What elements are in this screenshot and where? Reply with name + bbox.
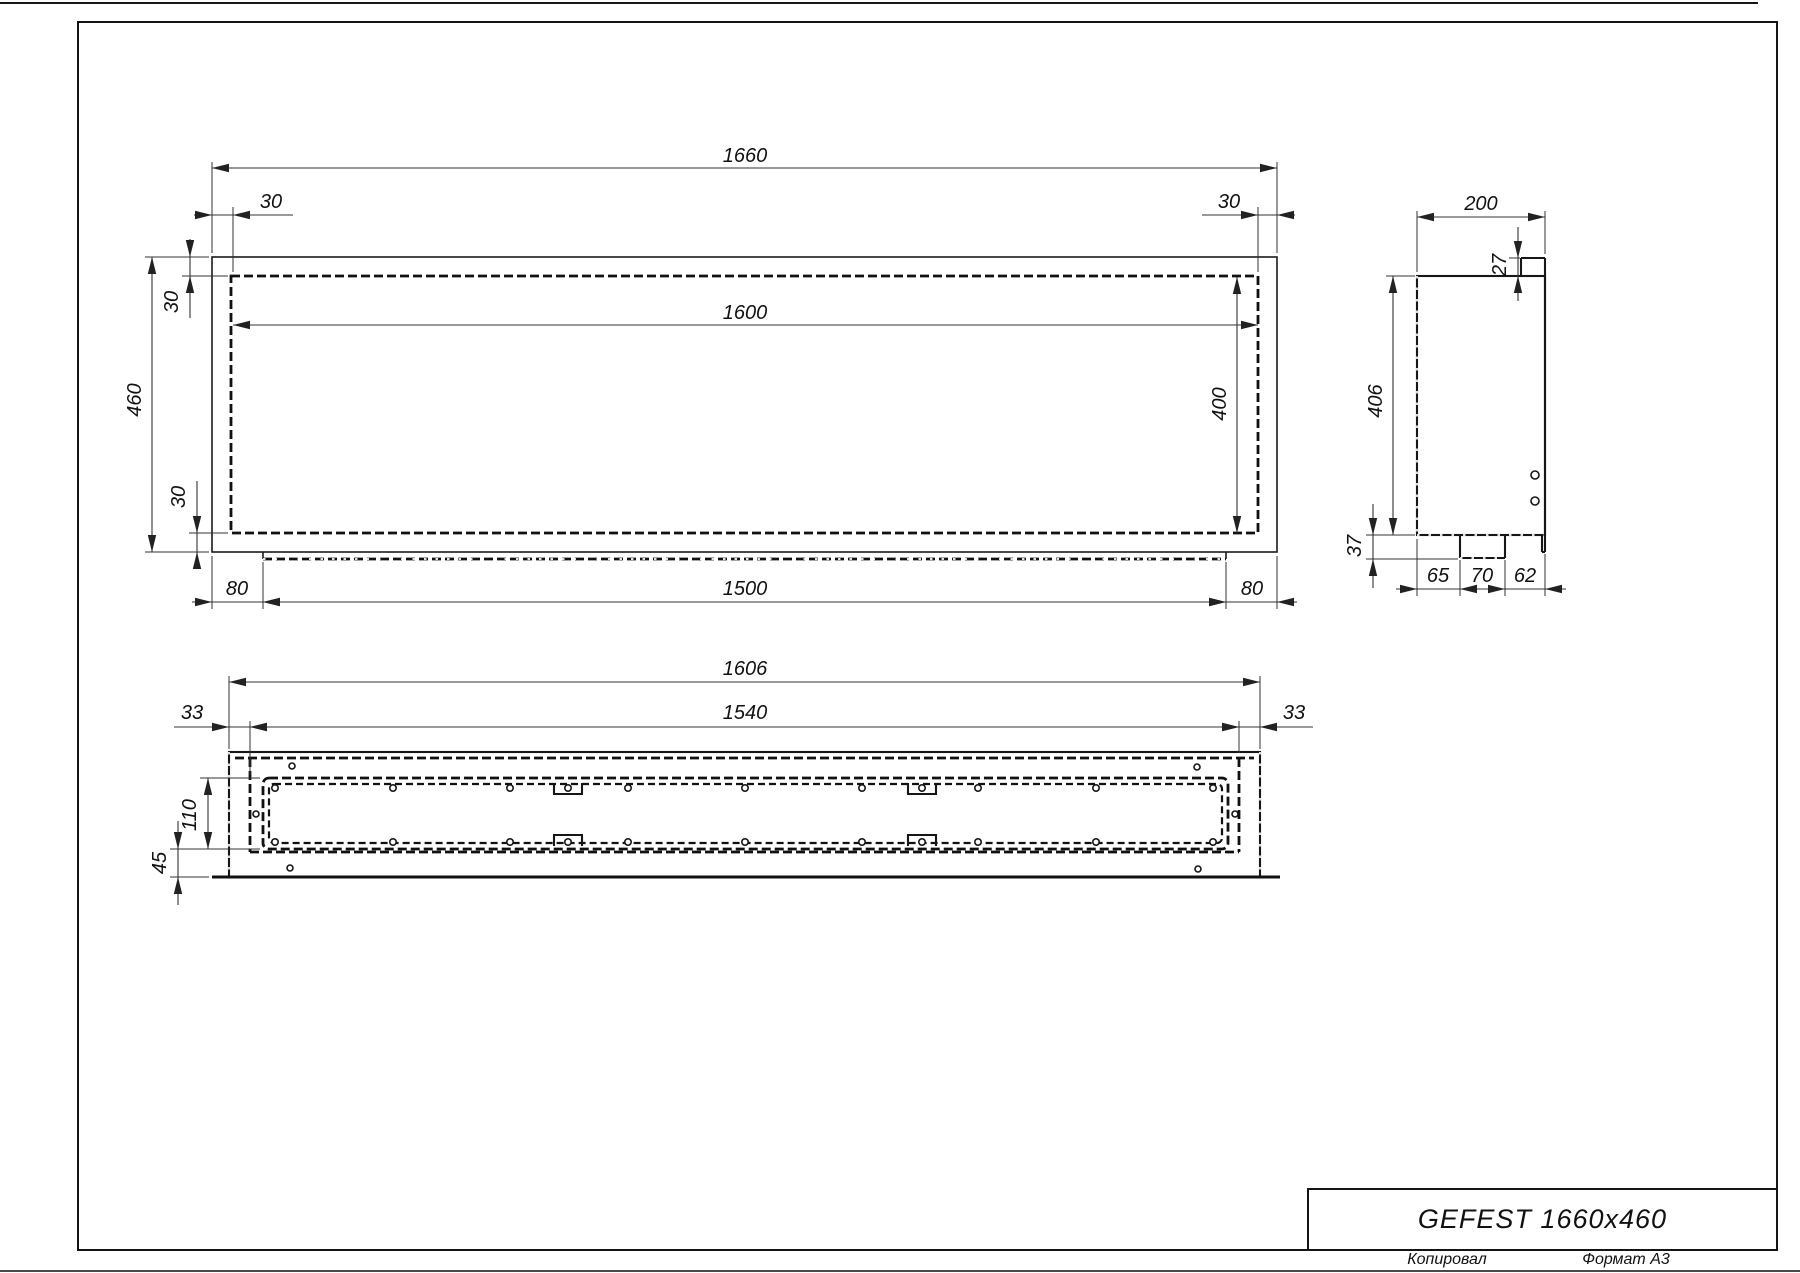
slot-hole — [1093, 785, 1099, 791]
dim-opening-width: 1600 — [233, 302, 1258, 329]
mount-hole — [289, 763, 295, 769]
dim-label: 30 — [260, 191, 282, 213]
drawing-title: GEFEST 1660x460 — [1418, 1204, 1667, 1235]
dimensions: 1660303016004604003030801500802002740637… — [124, 145, 1566, 905]
dim-margin-top-left: 30 — [194, 191, 293, 219]
dim-label: 45 — [149, 851, 171, 874]
dim-label: 37 — [1344, 534, 1366, 557]
dim-side-right: 33 — [1213, 702, 1313, 731]
dim-label: 1500 — [723, 578, 768, 600]
slot-hole — [390, 785, 396, 791]
drawing-sheet: 1660303016004604003030801500802002740637… — [0, 0, 1800, 1273]
dim-label: 1540 — [723, 702, 768, 724]
dim-depth: 200 — [1417, 193, 1545, 221]
dim-label: 70 — [1471, 565, 1493, 587]
dim-label: 110 — [179, 799, 201, 831]
dim-seg-left: 65 — [1396, 565, 1462, 593]
mount-hole — [1195, 866, 1201, 872]
bottom-view — [212, 752, 1280, 877]
dim-label: 400 — [1209, 387, 1231, 420]
title-block: GEFEST 1660x460 — [1307, 1188, 1778, 1251]
dim-label: 80 — [226, 578, 248, 600]
slot-hole — [919, 785, 925, 791]
dim-label: 1660 — [723, 145, 768, 167]
dim-label: 33 — [181, 702, 203, 724]
dim-label: 1600 — [723, 302, 768, 324]
slot-end-hole — [253, 811, 259, 817]
copied-label: Копировал — [1387, 1251, 1507, 1269]
slot-hole — [625, 839, 631, 845]
mount-hole — [287, 865, 293, 871]
slot-hole — [975, 839, 981, 845]
dim-width: 1660 — [212, 145, 1277, 172]
dim-label: 1606 — [723, 658, 768, 680]
dim-label: 62 — [1514, 565, 1536, 587]
slot-hole — [272, 839, 278, 845]
format-label: Формат А3 — [1566, 1251, 1686, 1269]
dim-tray-width: 1500 — [263, 578, 1226, 606]
slot-hole — [565, 785, 571, 791]
side-view — [1417, 258, 1545, 558]
dim-label: 406 — [1365, 383, 1387, 417]
dim-flange: 27 — [1489, 227, 1522, 301]
slot-end-hole — [1232, 811, 1238, 817]
slot-hole — [565, 839, 571, 845]
slot-hole — [859, 785, 865, 791]
slot-hole — [919, 839, 925, 845]
slot-hole — [507, 785, 513, 791]
dim-seg-mid: 70 — [1460, 565, 1505, 593]
dim-label: 80 — [1241, 578, 1263, 600]
dim-width: 1606 — [229, 658, 1260, 686]
dim-label: 30 — [168, 486, 190, 508]
slot-hole — [859, 839, 865, 845]
dim-label: 65 — [1427, 565, 1450, 587]
dim-label: 27 — [1489, 253, 1511, 277]
slot-hole — [625, 785, 631, 791]
dim-label: 460 — [124, 383, 146, 416]
dim-tray-offset-right: 80 — [1209, 578, 1297, 606]
dim-height: 460 — [124, 257, 156, 552]
dim-margin-bottom: 30 — [168, 481, 201, 569]
slot-hole — [390, 839, 396, 845]
dim-seg-right: 62 — [1503, 565, 1566, 593]
slot-hole — [742, 839, 748, 845]
slot-hole — [1093, 839, 1099, 845]
burner-slot-inner — [269, 784, 1222, 843]
dim-label: 30 — [161, 291, 183, 313]
side-hole — [1531, 497, 1539, 505]
dim-label: 30 — [1218, 191, 1240, 213]
slot-hole — [507, 839, 513, 845]
dim-label: 33 — [1283, 702, 1305, 724]
dim-inner-width: 1540 — [250, 702, 1239, 731]
slot-hole — [272, 785, 278, 791]
dim-opening-height: 400 — [1209, 277, 1241, 533]
mount-hole — [1194, 764, 1200, 770]
dim-height: 406 — [1365, 276, 1397, 535]
slot-hole — [975, 785, 981, 791]
dim-front-gap: 45 — [149, 821, 182, 905]
dim-slot-depth: 110 — [179, 778, 212, 849]
slot-hole — [1210, 839, 1216, 845]
slot-hole — [1210, 785, 1216, 791]
dim-margin-top-right: 30 — [1202, 191, 1295, 219]
dim-margin-left: 30 — [161, 239, 194, 318]
dim-bottom-drop: 37 — [1344, 504, 1377, 588]
side-hole — [1531, 471, 1539, 479]
drawing-views: 1660303016004604003030801500802002740637… — [0, 0, 1800, 1273]
slot-hole — [742, 785, 748, 791]
side-body-outline — [1417, 276, 1545, 535]
dim-label: 200 — [1463, 193, 1497, 215]
bottom-body-outline — [229, 752, 1260, 877]
